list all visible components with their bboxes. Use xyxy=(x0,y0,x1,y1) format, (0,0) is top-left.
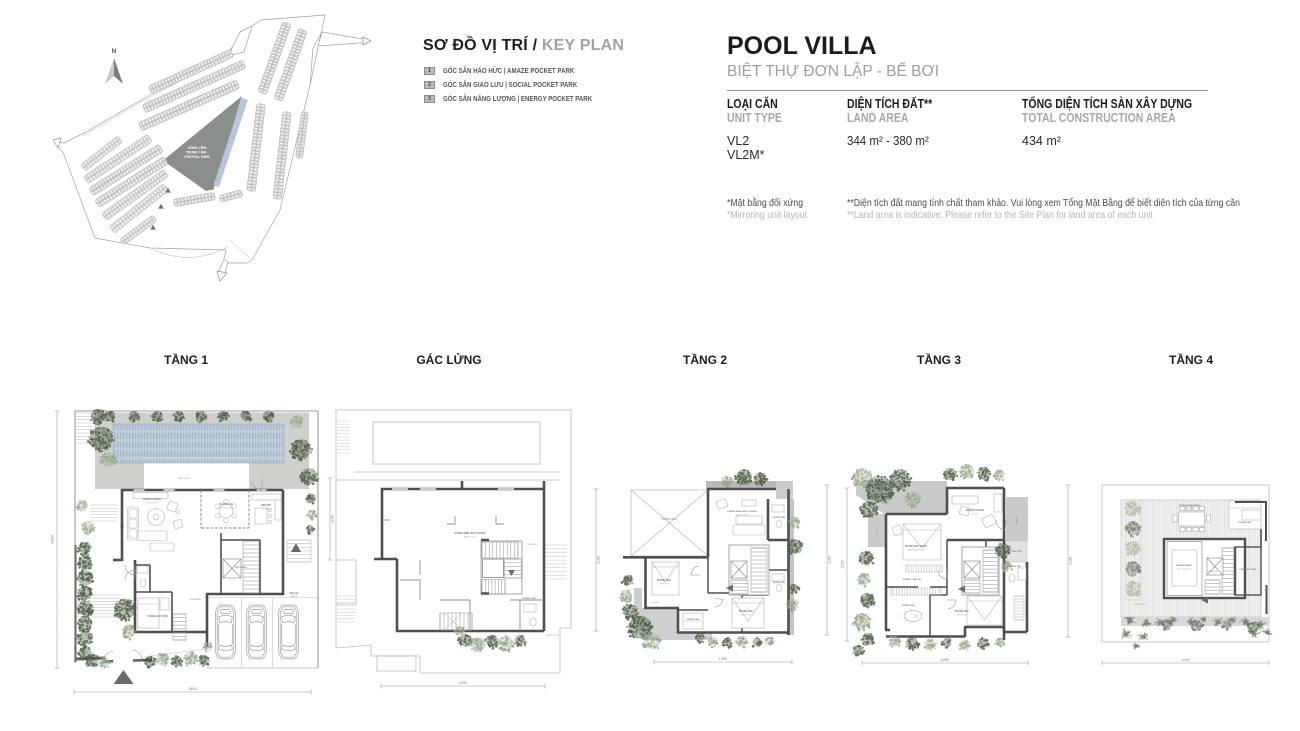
svg-text:1190: 1190 xyxy=(828,556,832,564)
svg-text:1190: 1190 xyxy=(1069,557,1073,565)
svg-text:VƯỜN NƯỚNG BBQ: VƯỜN NƯỚNG BBQ xyxy=(1178,504,1200,507)
svg-text:PHÒNG GIẶT: PHÒNG GIẶT xyxy=(1238,521,1252,524)
svg-text:PHÒNG TẮM: PHÒNG TẮM xyxy=(773,516,786,519)
svg-text:LIVING ROOM: LIVING ROOM xyxy=(146,502,158,504)
svg-text:PHÒNG SINH HOẠT CHUNG: PHÒNG SINH HOẠT CHUNG xyxy=(455,532,486,535)
svg-text:CENTRAL PARK: CENTRAL PARK xyxy=(184,155,210,159)
svg-text:PHÒNG NGỦ: PHÒNG NGỦ xyxy=(739,610,754,613)
svg-text:PHÒNG NGỦ: PHÒNG NGỦ xyxy=(955,610,970,613)
svg-text:DINING ROOM: DINING ROOM xyxy=(220,507,233,509)
svg-text:THÔNG TẦNG: THÔNG TẦNG xyxy=(661,518,677,521)
svg-text:1190: 1190 xyxy=(597,556,601,564)
svg-text:PHÒNG ĂN: PHÒNG ĂN xyxy=(220,503,233,506)
svg-text:PHÒNG THAY ĐỒ: PHÒNG THAY ĐỒ xyxy=(903,578,922,581)
svg-text:PHÒNG NGỦ CHÍNH: PHÒNG NGỦ CHÍNH xyxy=(905,545,927,548)
svg-text:PRIVATE SPACE: PRIVATE SPACE xyxy=(966,509,984,512)
svg-text:CẦU THANG: CẦU THANG xyxy=(526,543,538,546)
svg-text:LOGGIA: LOGGIA xyxy=(875,526,878,534)
svg-text:PHÒNG GIÚP VIỆC: PHÒNG GIÚP VIỆC xyxy=(148,615,169,618)
svg-text:PHÒNG TẮM: PHÒNG TẮM xyxy=(522,597,536,600)
svg-text:1800: 1800 xyxy=(188,687,196,691)
svg-text:VOID: VOID xyxy=(667,522,672,524)
svg-text:PHÒNG TẮM: PHÒNG TẮM xyxy=(1009,565,1021,568)
svg-text:NHÀ XE: NHÀ XE xyxy=(290,592,299,595)
svg-text:1290: 1290 xyxy=(459,681,467,685)
svg-text:THANG MÁY: THANG MÁY xyxy=(1208,570,1219,573)
svg-text:BEDROOM: BEDROOM xyxy=(659,583,669,585)
svg-text:PHÒNG SINH HOẠT CHUNG: PHÒNG SINH HOẠT CHUNG xyxy=(727,510,757,513)
svg-text:1290: 1290 xyxy=(1181,658,1189,662)
svg-text:BẾP MỞ: BẾP MỞ xyxy=(261,504,272,507)
svg-text:N: N xyxy=(112,48,117,55)
svg-text:LOGGIA: LOGGIA xyxy=(1015,516,1018,524)
svg-text:GARAGE: GARAGE xyxy=(290,595,298,598)
svg-text:PHÒNG NGỦ: PHÒNG NGỦ xyxy=(657,579,672,582)
svg-text:PHÒNG TẮM: PHÒNG TẮM xyxy=(687,618,700,621)
svg-text:TRUNG TÂM -: TRUNG TÂM - xyxy=(186,150,208,155)
svg-text:FAMILY ROOM: FAMILY ROOM xyxy=(464,535,477,538)
svg-text:SÂN VƯỜN: SÂN VƯỜN xyxy=(547,634,559,637)
svg-text:SÂN VƯỜN: SÂN VƯỜN xyxy=(178,477,190,480)
svg-text:1290: 1290 xyxy=(941,658,949,662)
svg-text:CHỖ NGHỈ: CHỖ NGHỈ xyxy=(190,598,201,601)
svg-text:MASTER BEDROOM: MASTER BEDROOM xyxy=(907,548,925,551)
svg-text:BEDROOM: BEDROOM xyxy=(957,614,967,616)
svg-text:1290: 1290 xyxy=(719,657,727,661)
svg-text:SÂN VƯỜN: SÂN VƯỜN xyxy=(1134,603,1146,606)
svg-text:PHÒNG KỸ THUẬT: PHÒNG KỸ THUẬT xyxy=(1239,568,1257,571)
svg-text:KHU ĐA NĂNG: KHU ĐA NĂNG xyxy=(1176,564,1192,567)
svg-text:PHÒNG KHÁCH: PHÒNG KHÁCH xyxy=(143,498,161,501)
svg-text:CỔNG TRỜI: CỔNG TRỜI xyxy=(1010,550,1022,553)
svg-text:BBQ GARDEN: BBQ GARDEN xyxy=(1183,507,1195,510)
svg-text:BEDROOM: BEDROOM xyxy=(741,614,751,616)
svg-text:1190: 1190 xyxy=(841,560,845,568)
svg-text:LOGGIA: LOGGIA xyxy=(651,601,659,604)
svg-text:PHÒNG TẮM: PHÒNG TẮM xyxy=(773,581,786,584)
svg-text:CÔNG VIÊN: CÔNG VIÊN xyxy=(188,145,207,150)
svg-text:1190: 1190 xyxy=(331,515,335,523)
svg-text:HỆ THỐNG: HỆ THỐNG xyxy=(235,566,247,569)
svg-text:KITCHEN: KITCHEN xyxy=(262,508,271,510)
svg-text:MULTI-PURPOSE: MULTI-PURPOSE xyxy=(1177,568,1192,570)
svg-text:FAMILY ROOM: FAMILY ROOM xyxy=(736,513,748,516)
svg-text:2000: 2000 xyxy=(51,535,55,543)
svg-text:PHÒNG TẮM: PHÒNG TẮM xyxy=(901,604,915,607)
svg-text:LOGGIA: LOGGIA xyxy=(901,495,909,498)
svg-text:STUDY: STUDY xyxy=(972,513,979,515)
